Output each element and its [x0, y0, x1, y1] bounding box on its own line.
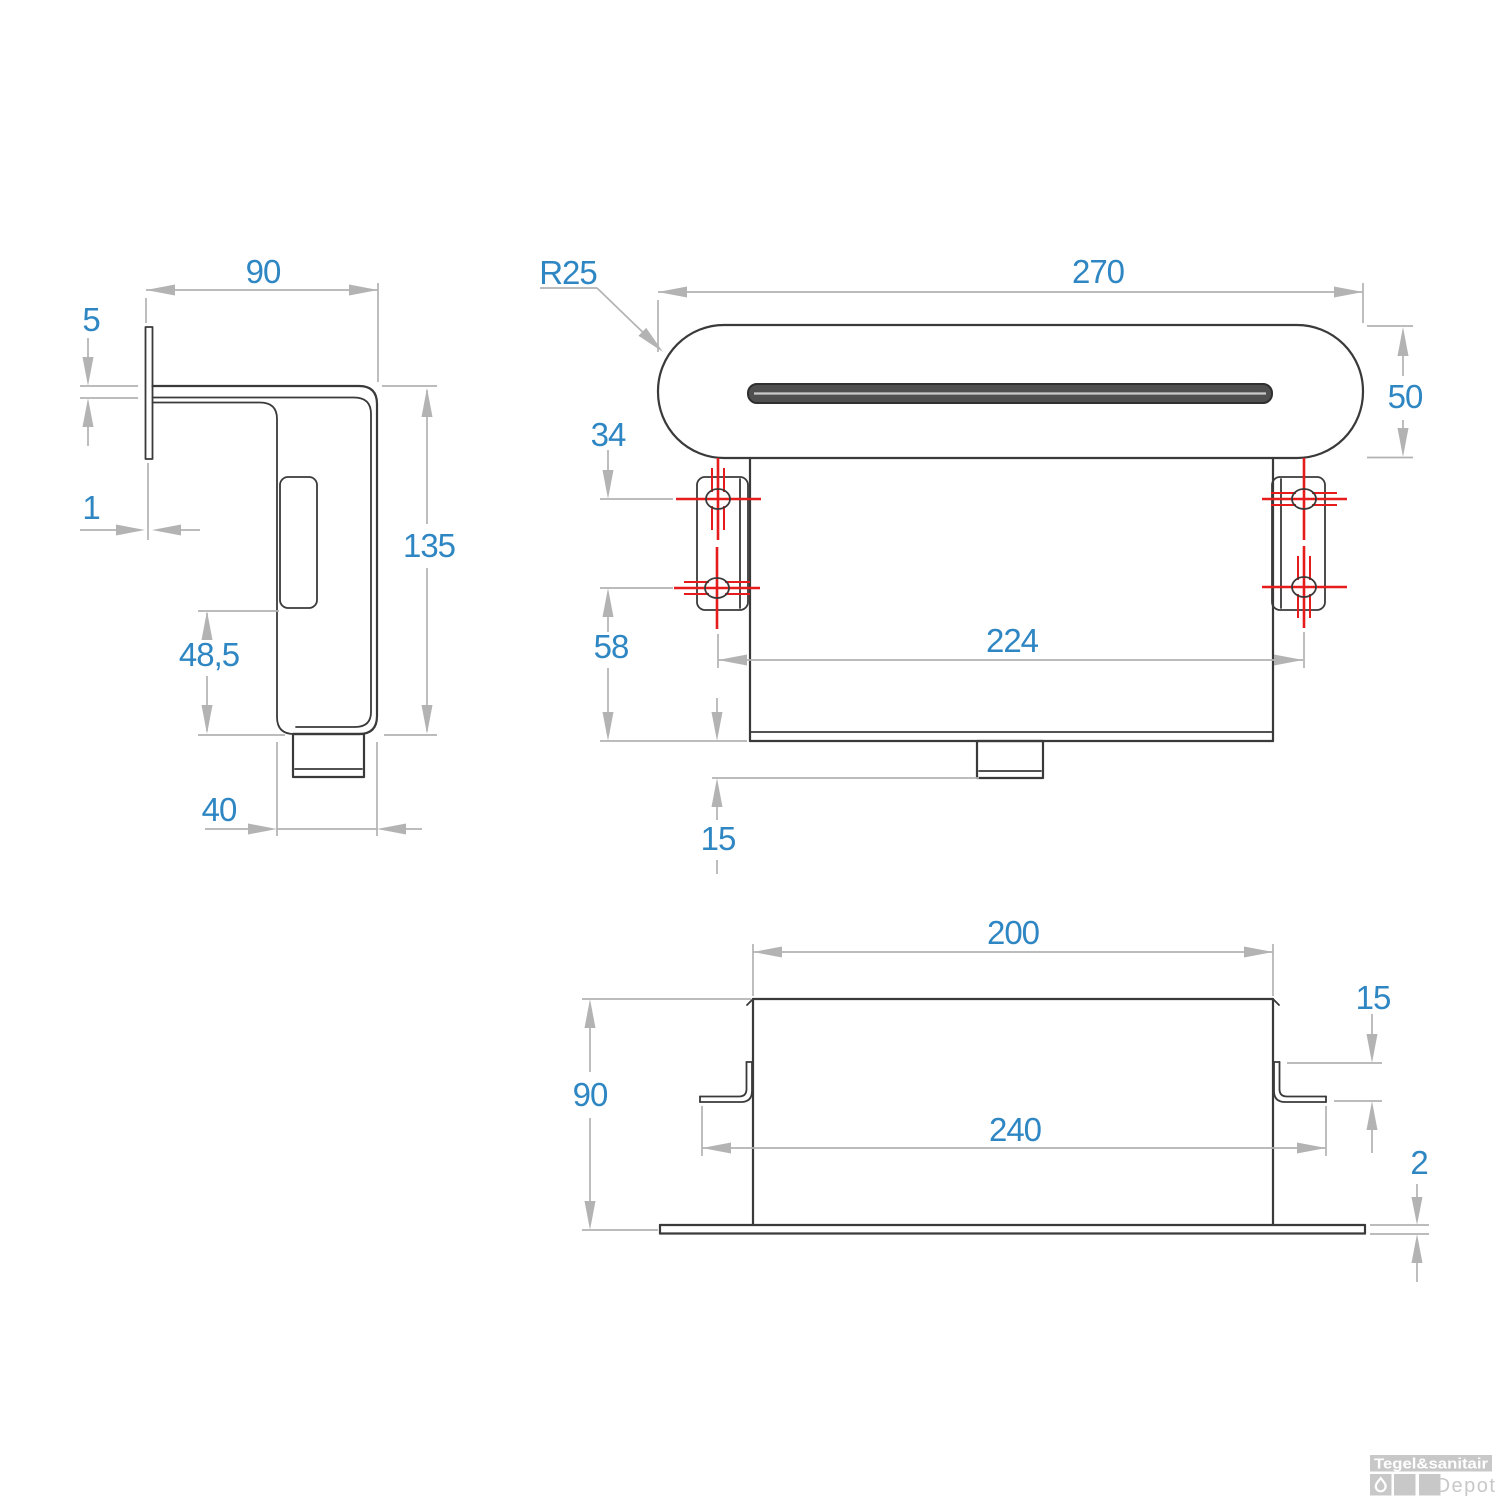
- dim-label-side-height: 135: [403, 527, 455, 564]
- dim-label-side-wall: 1: [82, 489, 99, 526]
- outlet-tab-side: [293, 734, 364, 777]
- dim-bottom-housing-width: 200: [753, 914, 1273, 996]
- dim-label-front-outlet: 15: [701, 820, 736, 857]
- dim-label-side-width: 90: [246, 253, 281, 290]
- outlet-tab-front: [977, 741, 1043, 778]
- screw-mark-bottom-right: [1262, 546, 1347, 628]
- mounting-bracket-side: [280, 477, 317, 608]
- water-slot: [748, 384, 1272, 403]
- dim-front-width: 270: [658, 253, 1363, 352]
- screw-mark-top-right: [1262, 458, 1347, 540]
- dim-front-screw-to-bottom: 58: [594, 628, 747, 741]
- dim-front-screw-spacing: 34: [591, 416, 673, 632]
- dim-bottom-plate-thickness: 2: [1370, 1144, 1429, 1282]
- dim-label-front-span: 224: [986, 622, 1039, 659]
- dim-side-top-width: 90: [146, 253, 378, 382]
- wall-clip-left: [700, 1062, 752, 1102]
- bottom-view: 200 90 240 15: [573, 914, 1429, 1282]
- dim-label-front-height: 50: [1388, 378, 1423, 415]
- spout-body-outer: [153, 386, 378, 734]
- dim-label-front-radius: R25: [539, 254, 597, 291]
- wall-flange-outline: [146, 327, 153, 459]
- dim-front-screw-span: 224: [718, 622, 1304, 668]
- dim-label-side-depth: 40: [202, 791, 237, 828]
- front-view: R25 270 50 34: [539, 253, 1423, 874]
- spout-housing: [750, 458, 1273, 741]
- dim-bottom-depth: 90: [573, 999, 751, 1230]
- dim-side-plate-thickness: 5: [80, 301, 138, 446]
- dim-side-wall-thickness: 1: [80, 463, 200, 540]
- wall-clip-right: [1274, 1062, 1326, 1102]
- dim-label-front-width: 270: [1072, 253, 1125, 290]
- front-view-part: [658, 325, 1363, 778]
- mounting-bracket-right: [1272, 477, 1325, 610]
- watermark: Tegel&sanitair Depot: [1370, 1455, 1496, 1497]
- dim-label-bottom-clip: 15: [1356, 979, 1391, 1016]
- dim-label-side-plate: 5: [82, 301, 99, 338]
- spout-body-mid: [153, 398, 372, 728]
- watermark-sub-text: Depot: [1436, 1475, 1497, 1497]
- side-view: 90 5 1 135: [80, 253, 455, 836]
- dim-side-depth: 40: [202, 742, 422, 836]
- dim-label-bottom-width: 200: [987, 914, 1040, 951]
- dim-side-bracket-offset: 48,5: [179, 611, 285, 735]
- wall-plate-bottom-view: [660, 1225, 1365, 1234]
- side-view-part: [146, 327, 378, 777]
- dim-label-bottom-plate: 2: [1410, 1144, 1427, 1181]
- dim-front-height: 50: [1367, 326, 1423, 458]
- dim-label-front-screws: 34: [591, 416, 626, 453]
- dim-bottom-clip-span: 240: [702, 1106, 1326, 1156]
- dim-front-radius: R25: [539, 254, 663, 352]
- dim-label-side-bracket: 48,5: [179, 636, 239, 673]
- watermark-tile-2: [1394, 1474, 1416, 1496]
- dim-front-outlet-drop: 15: [701, 698, 979, 874]
- dim-side-height: 135: [382, 386, 455, 735]
- dim-label-front-lower: 58: [594, 628, 629, 665]
- technical-drawing-canvas: 90 5 1 135: [0, 0, 1500, 1500]
- dim-label-bottom-span: 240: [989, 1111, 1042, 1148]
- dim-bottom-clip-height: 15: [1287, 979, 1390, 1153]
- dim-label-bottom-depth: 90: [573, 1076, 608, 1113]
- watermark-brand-text: Tegel&sanitair: [1374, 1457, 1488, 1473]
